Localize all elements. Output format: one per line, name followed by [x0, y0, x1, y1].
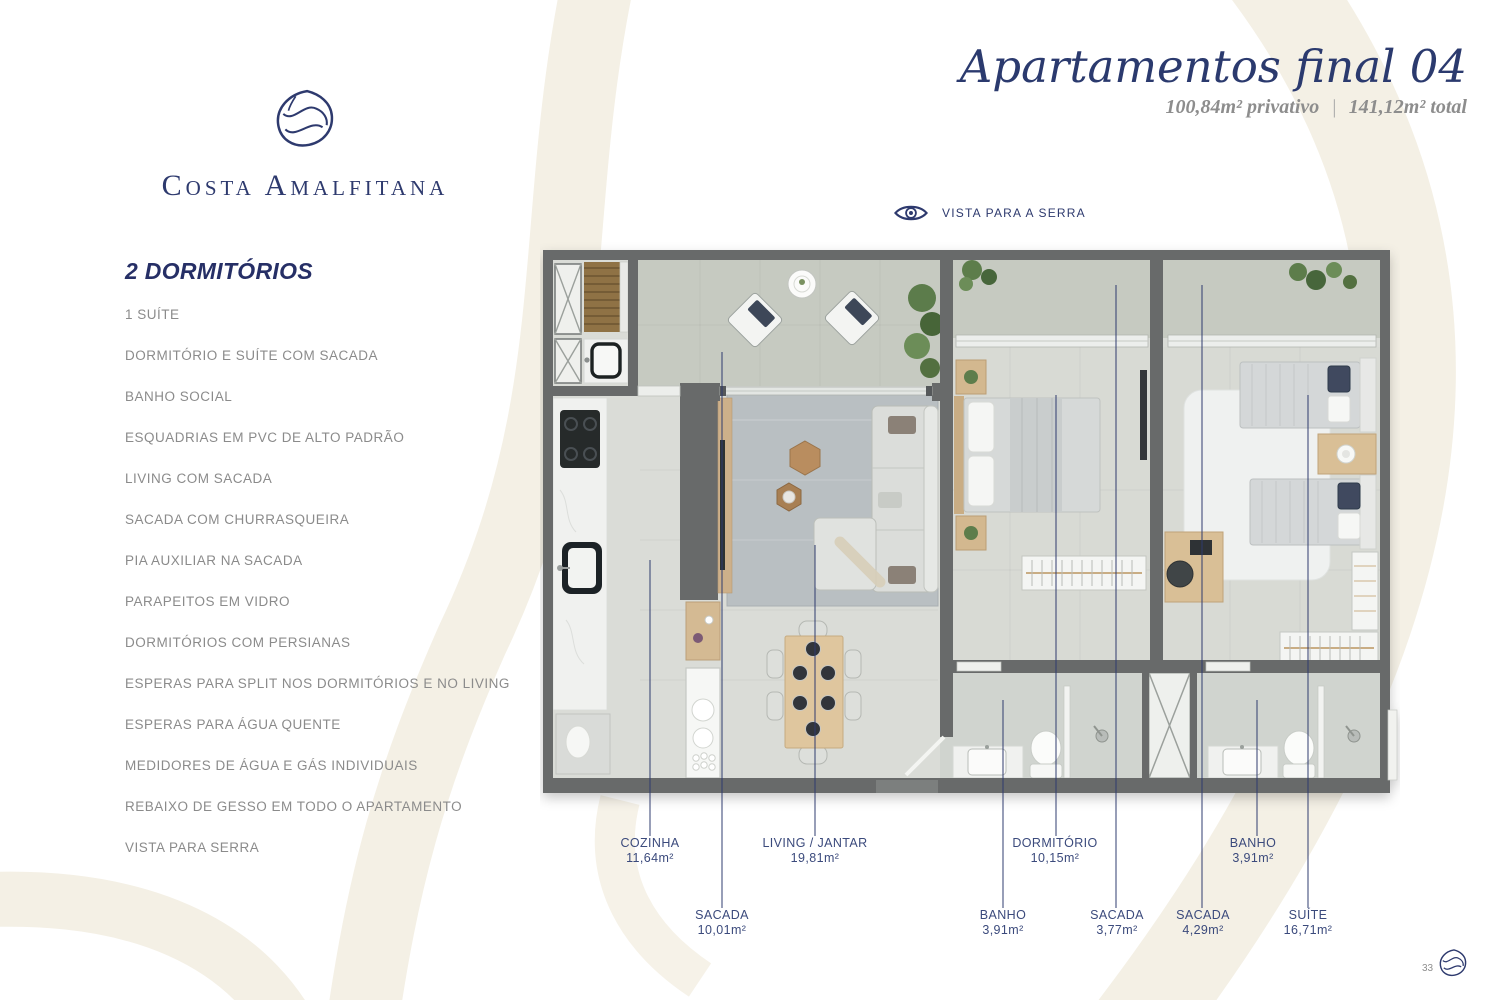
- bar-cabinet: [686, 668, 720, 778]
- feature-item: MEDIDORES DE ÁGUA E GÁS INDIVIDUAIS: [125, 759, 510, 773]
- kitchen: [553, 398, 610, 774]
- floor-plan: [543, 250, 1397, 793]
- footer-logo-icon: [1438, 948, 1468, 978]
- view-note-label: VISTA PARA A SERRA: [942, 206, 1086, 220]
- feature-item: BANHO SOCIAL: [125, 390, 510, 404]
- room-label-living-jantar: LIVING / JANTAR 19,81m²: [762, 836, 867, 866]
- feature-item: 1 SUÍTE: [125, 308, 510, 322]
- page-number: 33: [1422, 963, 1433, 974]
- brand-logo-icon: [272, 88, 338, 150]
- brand-logo: Costa Amalfitana: [155, 88, 455, 203]
- feature-item: DORMITÓRIO E SUÍTE COM SACADA: [125, 349, 510, 363]
- eye-icon: [893, 202, 929, 224]
- feature-item: VISTA PARA SERRA: [125, 841, 510, 855]
- feature-item: ESPERAS PARA SPLIT NOS DORMITÓRIOS E NO …: [125, 677, 510, 691]
- view-note: VISTA PARA A SERRA: [893, 202, 1086, 224]
- area-total: 141,12m² total: [1349, 96, 1467, 118]
- apartment-areas: 100,84m² privativo|141,12m² total: [960, 96, 1467, 119]
- feature-item: ESQUADRIAS EM PVC DE ALTO PADRÃO: [125, 431, 510, 445]
- room-label-cozinha: COZINHA 11,64m²: [620, 836, 679, 866]
- feature-item: DORMITÓRIOS COM PERSIANAS: [125, 636, 510, 650]
- living-room: [727, 391, 938, 606]
- room-label-banho-suite: BANHO 3,91m²: [1230, 836, 1276, 866]
- room-label-banho-social: BANHO 3,91m²: [980, 908, 1026, 938]
- suite-shelf: [1352, 552, 1378, 630]
- room-label-sacada-living: SACADA 10,01m²: [695, 908, 749, 938]
- feature-item: LIVING COM SACADA: [125, 472, 510, 486]
- area-private: 100,84m² privativo: [1166, 96, 1320, 118]
- feature-list: 1 SUÍTE DORMITÓRIO E SUÍTE COM SACADA BA…: [125, 308, 510, 882]
- room-label-sacada-dormitorio: SACADA 3,77m²: [1090, 908, 1144, 938]
- feature-item: ESPERAS PARA ÁGUA QUENTE: [125, 718, 510, 732]
- area-separator: |: [1331, 96, 1337, 118]
- room-label-dormitorio: DORMITÓRIO 10,15m²: [1012, 836, 1097, 866]
- feature-item: REBAIXO DE GESSO EM TODO O APARTAMENTO: [125, 800, 510, 814]
- utility-column: [555, 262, 628, 383]
- toilet: [1284, 731, 1314, 765]
- feature-item: PARAPEITOS EM VIDRO: [125, 595, 510, 609]
- room-label-suite: SUÍTE 16,71m²: [1284, 908, 1333, 938]
- duct-shaft: [1149, 673, 1190, 778]
- room-label-sacada-suite: SACADA 4,29m²: [1176, 908, 1230, 938]
- feature-item: PIA AUXILIAR NA SACADA: [125, 554, 510, 568]
- churrasqueira-grill: [584, 262, 620, 332]
- apartment-title: Apartamentos final 04: [960, 42, 1467, 92]
- brand-name: Costa Amalfitana: [155, 169, 455, 203]
- dorm-tv: [1140, 370, 1147, 460]
- header-title-block: Apartamentos final 04 100,84m² privativo…: [960, 42, 1467, 119]
- unit-heading: 2 DORMITÓRIOS: [125, 258, 313, 285]
- feature-item: SACADA COM CHURRASQUEIRA: [125, 513, 510, 527]
